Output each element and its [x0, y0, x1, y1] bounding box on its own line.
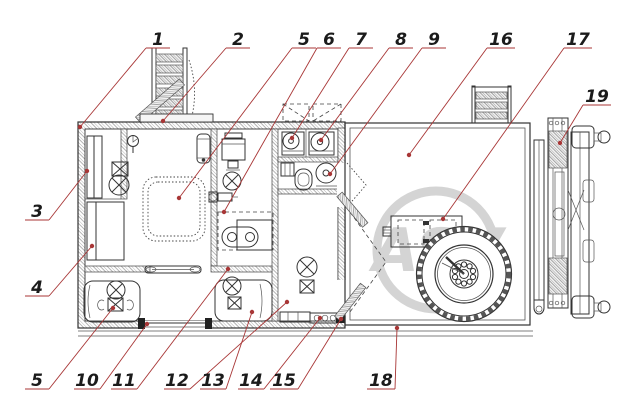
leader-dot [226, 267, 230, 271]
callout-18: 18 [367, 326, 399, 391]
callout-number: 1 [152, 30, 164, 50]
leader-dot [78, 125, 82, 129]
leader-dot [558, 141, 562, 145]
callout-number: 6 [323, 30, 335, 50]
cabin-module [78, 122, 346, 329]
trailer-plan-drawing: ASV [0, 0, 630, 420]
leader-dot [318, 316, 322, 320]
leader-dot [407, 153, 411, 157]
callout-number: 14 [239, 371, 263, 391]
callout-number: 9 [428, 30, 440, 50]
callout-number: 2 [232, 30, 244, 50]
callout-number: 15 [272, 371, 296, 391]
callout-number: 19 [585, 87, 609, 107]
leader-dot [290, 136, 294, 140]
leader-dot [177, 196, 181, 200]
leader-dot [328, 172, 332, 176]
stairs-main [135, 48, 213, 123]
callout-number: 5 [298, 30, 310, 50]
callout-number: 7 [355, 30, 367, 50]
callout-number: 5 [31, 371, 43, 391]
callout-number: 16 [489, 30, 513, 50]
callout-number: 10 [75, 371, 99, 391]
leader-dot [222, 210, 226, 214]
callout-number: 11 [112, 371, 136, 391]
leader-dot [85, 169, 89, 173]
spare-wheel [417, 227, 512, 322]
leader-dot [395, 326, 399, 330]
callout-number: 12 [165, 371, 189, 391]
leader-dot [145, 322, 149, 326]
callout-number: 18 [369, 371, 393, 391]
callout-number: 17 [566, 30, 590, 50]
leader-dot [250, 310, 254, 314]
leader-dot [339, 317, 343, 321]
stairs-small [472, 86, 511, 123]
callout-number: 4 [30, 278, 43, 298]
callout-number: 3 [31, 202, 43, 222]
callout-number: 8 [395, 30, 407, 50]
leader-dot [161, 119, 165, 123]
leader-dot [111, 306, 115, 310]
chassis-base-rail [78, 331, 533, 336]
leader-dot [441, 217, 445, 221]
callout-number: 13 [201, 371, 225, 391]
blueprint-canvas: ASV [0, 0, 630, 420]
leader-dot [285, 300, 289, 304]
leader-dot [90, 244, 94, 248]
chassis-side-view [534, 118, 610, 318]
leader-dot [319, 138, 323, 142]
